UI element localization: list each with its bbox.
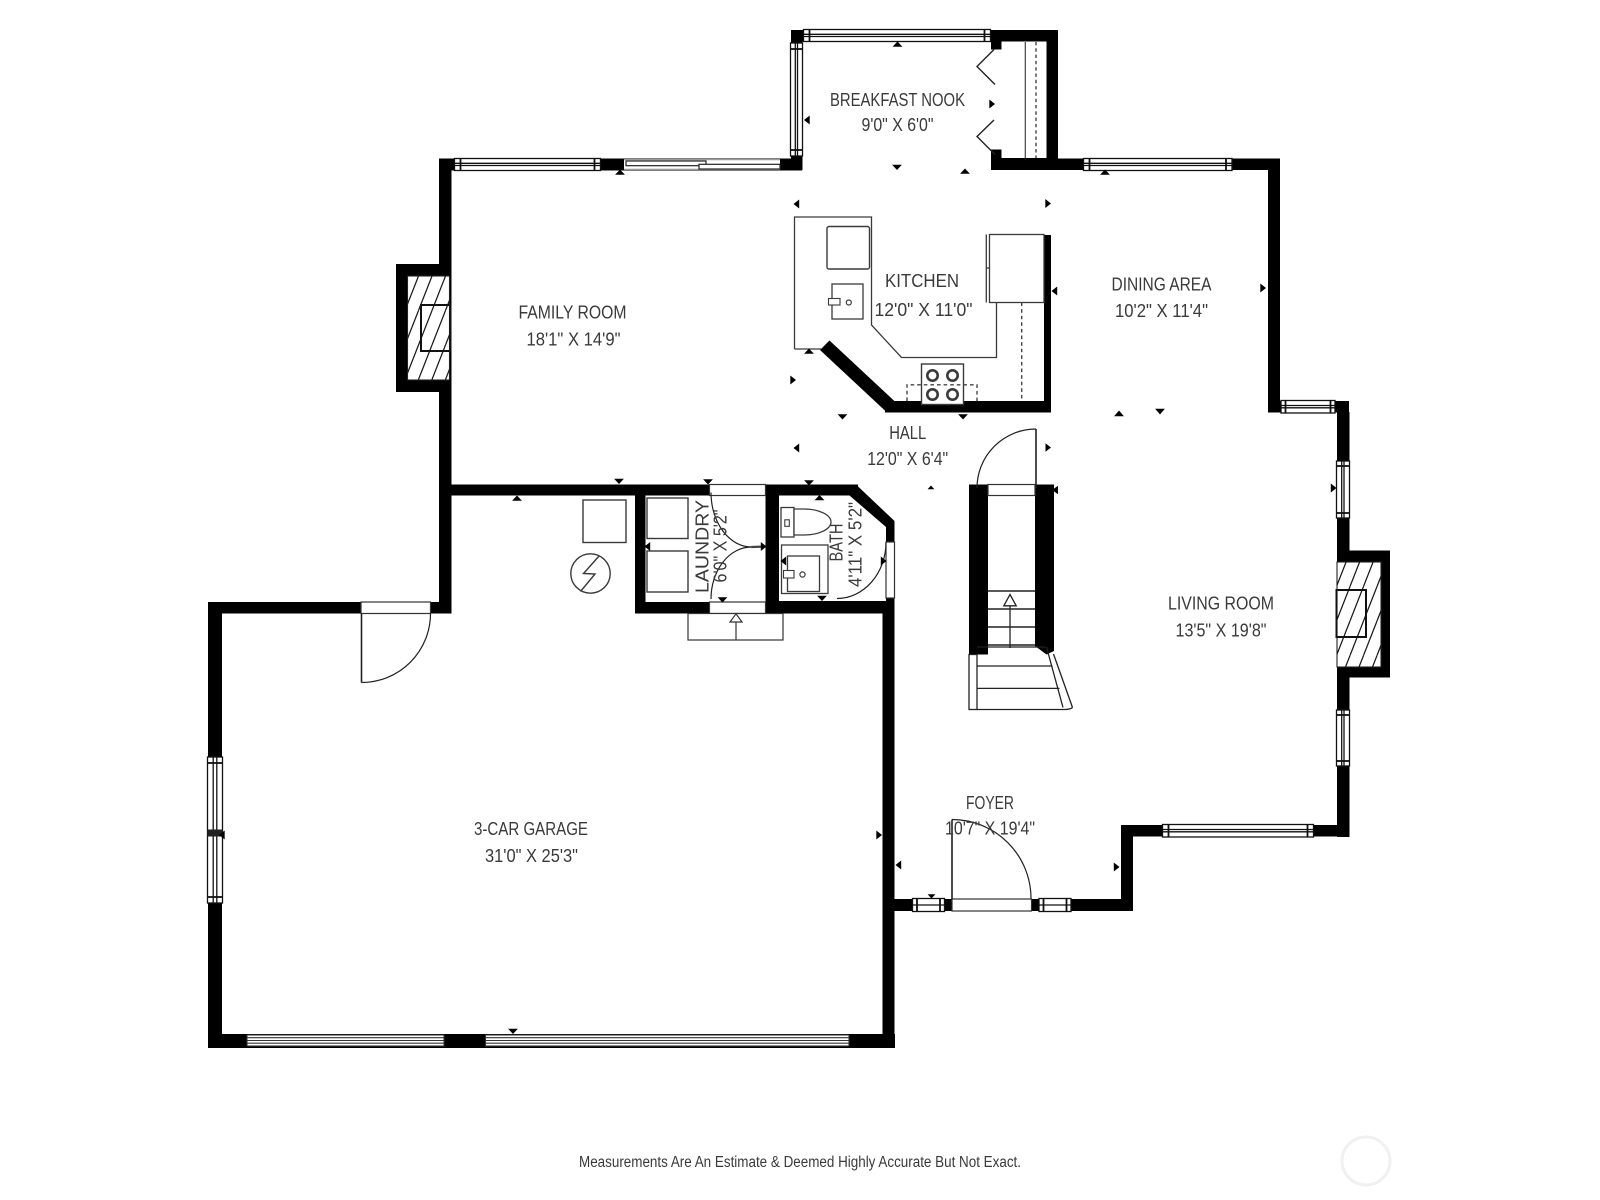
svg-text:12'0" X 6'4": 12'0" X 6'4" (867, 449, 948, 469)
svg-text:3-CAR GARAGE: 3-CAR GARAGE (474, 819, 588, 839)
svg-text:10'2" X 11'4": 10'2" X 11'4" (1115, 301, 1208, 321)
svg-text:18'1" X 14'9": 18'1" X 14'9" (527, 330, 621, 350)
svg-text:LIVING ROOM: LIVING ROOM (1168, 594, 1274, 614)
svg-text:31'0" X 25'3": 31'0" X 25'3" (485, 846, 578, 866)
svg-text:6'0" X 5'2": 6'0" X 5'2" (711, 510, 731, 583)
svg-text:12'0" X 11'0": 12'0" X 11'0" (875, 300, 973, 320)
svg-text:9'0" X 6'0": 9'0" X 6'0" (862, 115, 934, 135)
svg-text:10'7" X 19'4": 10'7" X 19'4" (945, 819, 1035, 839)
svg-text:FAMILY ROOM: FAMILY ROOM (519, 303, 627, 323)
svg-text:BATH: BATH (827, 524, 847, 562)
svg-text:LAUNDRY: LAUNDRY (693, 500, 713, 593)
svg-text:HALL: HALL (889, 423, 926, 443)
svg-text:BREAKFAST NOOK: BREAKFAST NOOK (830, 90, 965, 110)
svg-text:13'5" X 19'8": 13'5" X 19'8" (1176, 621, 1267, 641)
svg-text:FOYER: FOYER (966, 793, 1014, 813)
svg-text:DINING AREA: DINING AREA (1112, 275, 1212, 295)
svg-text:Measurements Are An Estimate &: Measurements Are An Estimate & Deemed Hi… (579, 1154, 1021, 1171)
svg-text:KITCHEN: KITCHEN (885, 271, 959, 291)
svg-text:4'11" X 5'2": 4'11" X 5'2" (846, 502, 866, 587)
